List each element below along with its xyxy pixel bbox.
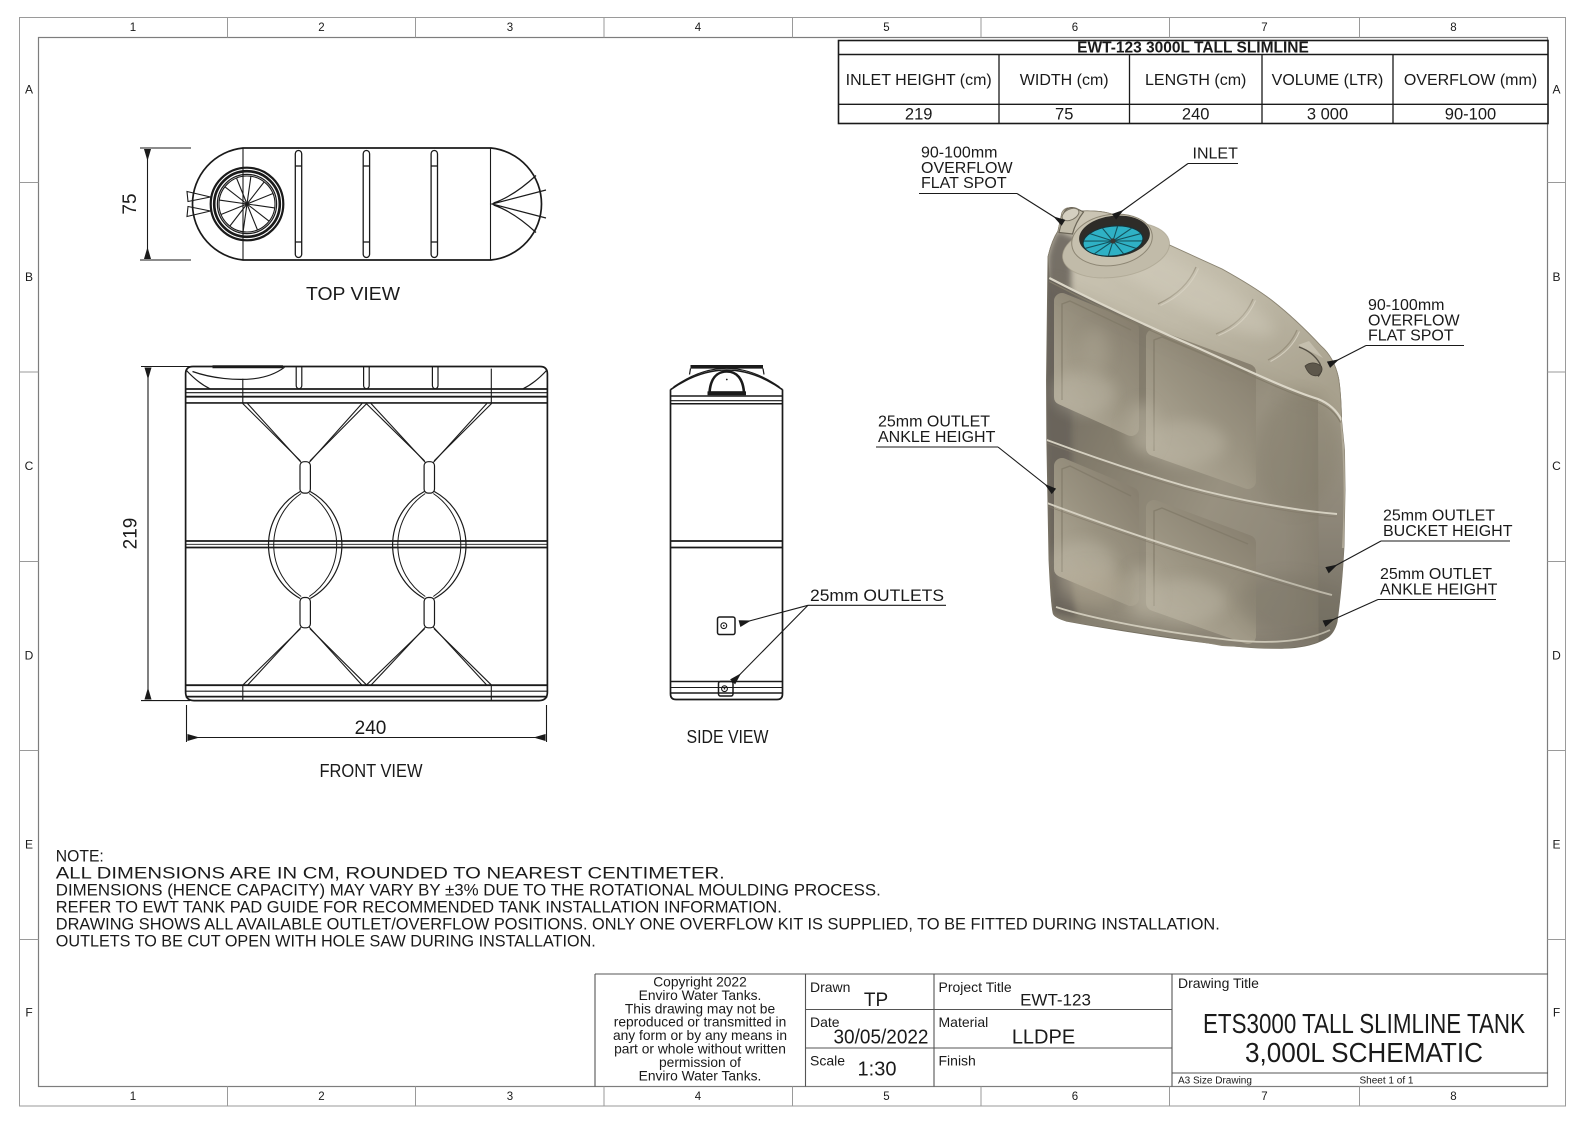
svg-text:D: D [25, 649, 34, 663]
svg-text:ANKLE HEIGHT: ANKLE HEIGHT [878, 429, 996, 446]
svg-text:FLAT SPOT: FLAT SPOT [1368, 328, 1454, 345]
svg-text:ETS3000 TALL SLIMLINE TANK: ETS3000 TALL SLIMLINE TANK [1203, 1008, 1526, 1039]
svg-text:B: B [25, 270, 33, 284]
svg-text:90-100: 90-100 [1445, 106, 1496, 124]
svg-text:6: 6 [1072, 22, 1078, 34]
svg-text:Material: Material [939, 1014, 989, 1030]
svg-text:8: 8 [1450, 1091, 1456, 1103]
svg-text:EWT-123 3000L TALL SLIMLINE: EWT-123 3000L TALL SLIMLINE [1077, 40, 1309, 57]
svg-text:7: 7 [1261, 22, 1267, 34]
svg-text:D: D [1552, 649, 1561, 663]
svg-text:A: A [1552, 83, 1560, 97]
svg-text:FLAT SPOT: FLAT SPOT [921, 175, 1007, 192]
svg-text:240: 240 [355, 718, 387, 739]
svg-text:OUTLETS TO BE CUT OPEN WITH HO: OUTLETS TO BE CUT OPEN WITH HOLE SAW DUR… [56, 932, 596, 951]
svg-text:EWT-123: EWT-123 [1020, 991, 1091, 1010]
svg-text:8: 8 [1450, 22, 1456, 34]
svg-text:1:30: 1:30 [858, 1059, 897, 1081]
svg-text:A: A [25, 83, 33, 97]
svg-text:219: 219 [905, 106, 933, 124]
svg-text:F: F [1553, 1006, 1560, 1020]
svg-text:C: C [25, 459, 34, 473]
svg-text:3 000: 3 000 [1307, 106, 1348, 124]
svg-text:30/05/2022: 30/05/2022 [834, 1027, 929, 1049]
svg-text:5: 5 [883, 22, 889, 34]
svg-text:TP: TP [864, 990, 888, 1011]
svg-text:ANKLE HEIGHT: ANKLE HEIGHT [1380, 581, 1498, 598]
svg-text:3: 3 [507, 1091, 513, 1103]
svg-text:6: 6 [1072, 1091, 1078, 1103]
svg-text:Project Title: Project Title [939, 979, 1012, 995]
svg-text:25mm OUTLETS: 25mm OUTLETS [810, 587, 944, 605]
svg-text:F: F [25, 1006, 32, 1020]
svg-text:B: B [1552, 270, 1560, 284]
svg-text:75: 75 [120, 193, 141, 214]
svg-text:Scale: Scale [810, 1053, 845, 1069]
svg-text:SIDE VIEW: SIDE VIEW [687, 726, 769, 747]
svg-text:VOLUME (LTR): VOLUME (LTR) [1272, 72, 1384, 89]
svg-text:E: E [1552, 838, 1560, 852]
svg-text:BUCKET HEIGHT: BUCKET HEIGHT [1383, 523, 1513, 540]
svg-text:3: 3 [507, 22, 513, 34]
svg-text:2: 2 [318, 1091, 324, 1103]
svg-text:E: E [25, 838, 33, 852]
svg-text:Enviro Water Tanks.: Enviro Water Tanks. [639, 1068, 762, 1083]
svg-text:OVERFLOW (mm): OVERFLOW (mm) [1404, 72, 1537, 89]
svg-text:4: 4 [695, 1091, 702, 1103]
svg-text:TOP VIEW: TOP VIEW [306, 283, 401, 304]
svg-text:A3 Size Drawing: A3 Size Drawing [1178, 1076, 1252, 1087]
svg-text:Sheet 1 of 1: Sheet 1 of 1 [1360, 1076, 1414, 1087]
svg-text:LLDPE: LLDPE [1012, 1027, 1075, 1049]
svg-text:4: 4 [695, 22, 702, 34]
svg-text:FRONT VIEW: FRONT VIEW [320, 760, 423, 781]
svg-text:Finish: Finish [939, 1053, 976, 1069]
svg-text:C: C [1552, 459, 1561, 473]
svg-text:INLET: INLET [1193, 146, 1239, 163]
svg-text:240: 240 [1182, 106, 1210, 124]
svg-text:INLET HEIGHT (cm): INLET HEIGHT (cm) [846, 72, 992, 89]
svg-text:Drawn: Drawn [810, 979, 850, 995]
svg-text:2: 2 [318, 22, 324, 34]
svg-text:LENGTH (cm): LENGTH (cm) [1145, 72, 1246, 89]
svg-text:219: 219 [121, 518, 142, 550]
svg-text:WIDTH (cm): WIDTH (cm) [1020, 72, 1109, 89]
svg-text:5: 5 [883, 1091, 889, 1103]
svg-text:1: 1 [130, 22, 136, 34]
svg-text:1: 1 [130, 1091, 136, 1103]
svg-text:Drawing Title: Drawing Title [1178, 975, 1259, 991]
svg-text:75: 75 [1055, 106, 1073, 124]
svg-text:7: 7 [1261, 1091, 1267, 1103]
svg-text:3,000L SCHEMATIC: 3,000L SCHEMATIC [1245, 1037, 1483, 1068]
